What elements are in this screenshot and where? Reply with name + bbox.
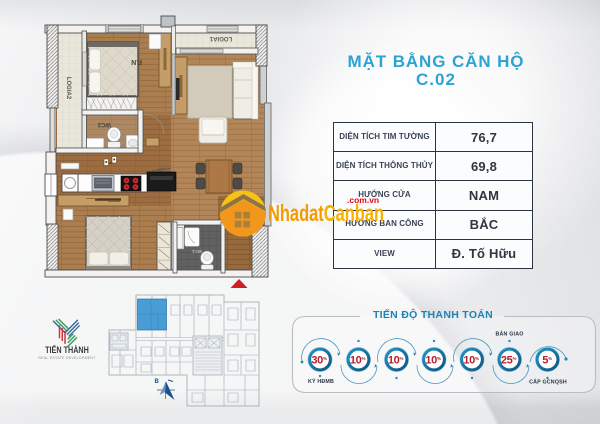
svg-text:CẤP GCNQSH: CẤP GCNQSH bbox=[529, 379, 567, 386]
svg-text:KÝ HĐMB: KÝ HĐMB bbox=[308, 378, 334, 385]
svg-text:BÀN GIAO: BÀN GIAO bbox=[495, 331, 523, 338]
